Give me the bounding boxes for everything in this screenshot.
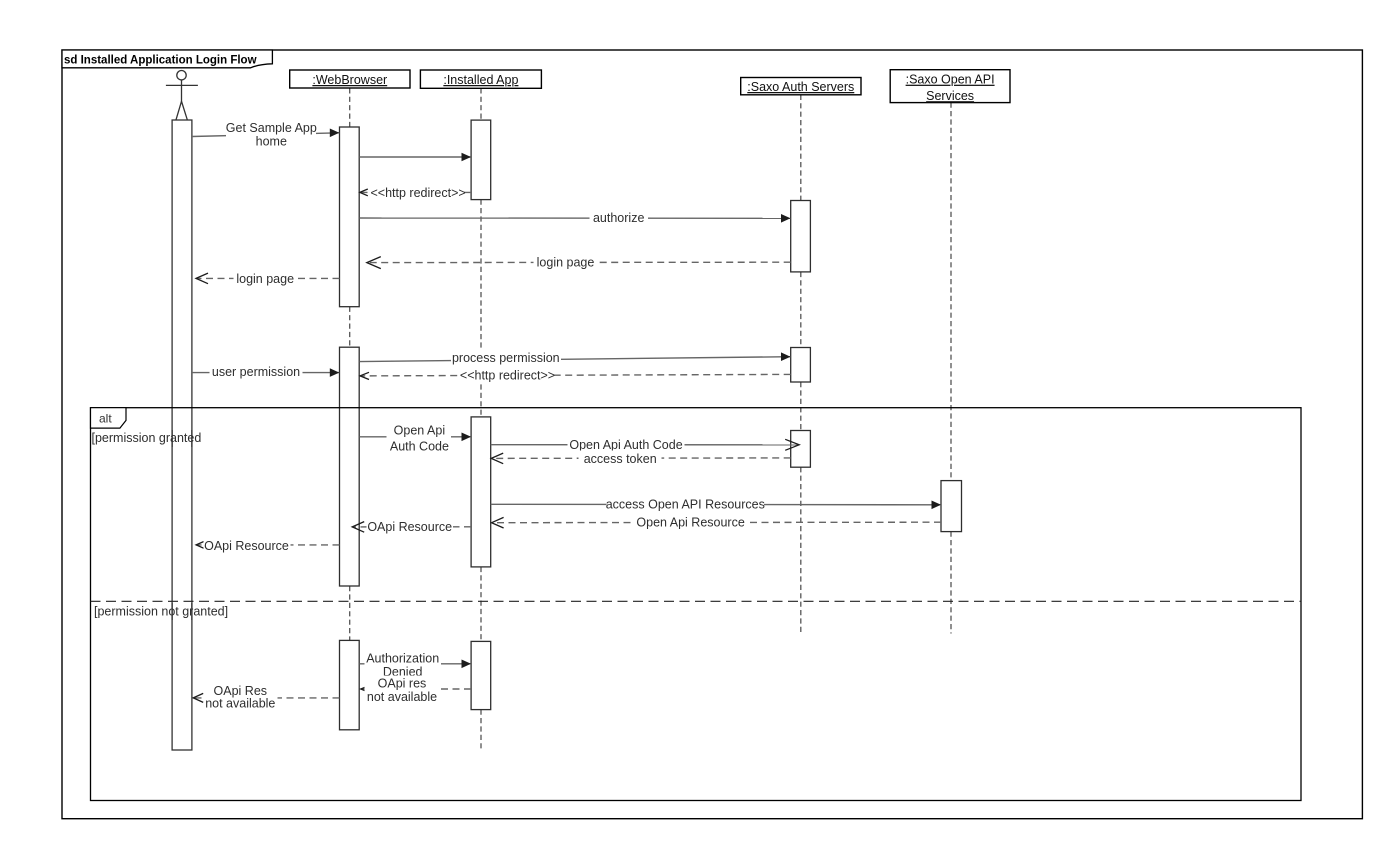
svg-text:[permission not granted]: [permission not granted] [94,605,228,619]
svg-text:Open Api Auth Code: Open Api Auth Code [569,438,682,452]
svg-text:Authorization: Authorization [366,652,439,666]
svg-text:Open Api Resource: Open Api Resource [636,516,744,530]
svg-text:OApi Resource: OApi Resource [367,520,452,534]
svg-text:user permission: user permission [212,365,300,379]
svg-text:Get Sample App: Get Sample App [226,121,317,135]
svg-text::Installed App: :Installed App [443,73,518,87]
svg-text:OApi Resource: OApi Resource [204,539,289,553]
svg-text:OApi res: OApi res [378,677,427,691]
svg-text:home: home [256,135,287,149]
svg-text:login page: login page [537,256,595,270]
svg-text:access Open API Resources: access Open API Resources [606,498,765,512]
svg-text:Open Api: Open Api [394,423,445,437]
svg-text:[permission granted: [permission granted [92,431,202,445]
svg-text:login page: login page [236,272,294,286]
svg-text:access token: access token [584,452,657,466]
svg-text::Saxo Open API: :Saxo Open API [906,73,995,87]
svg-text:<<http redirect>>: <<http redirect>> [371,186,466,200]
svg-text:process permission: process permission [452,351,560,365]
svg-text:not available: not available [205,696,275,710]
svg-text:sd Installed Application Login: sd Installed Application Login Flow [64,55,257,67]
svg-text:Services: Services [926,89,974,103]
svg-text:Auth Code: Auth Code [390,440,449,454]
svg-text:authorize: authorize [593,211,644,225]
svg-text::WebBrowser: :WebBrowser [312,73,387,87]
svg-text:<<http redirect>>: <<http redirect>> [460,369,555,383]
svg-text:not available: not available [367,690,437,704]
svg-text::Saxo Auth Servers: :Saxo Auth Servers [747,80,854,94]
svg-text:alt: alt [99,412,112,426]
